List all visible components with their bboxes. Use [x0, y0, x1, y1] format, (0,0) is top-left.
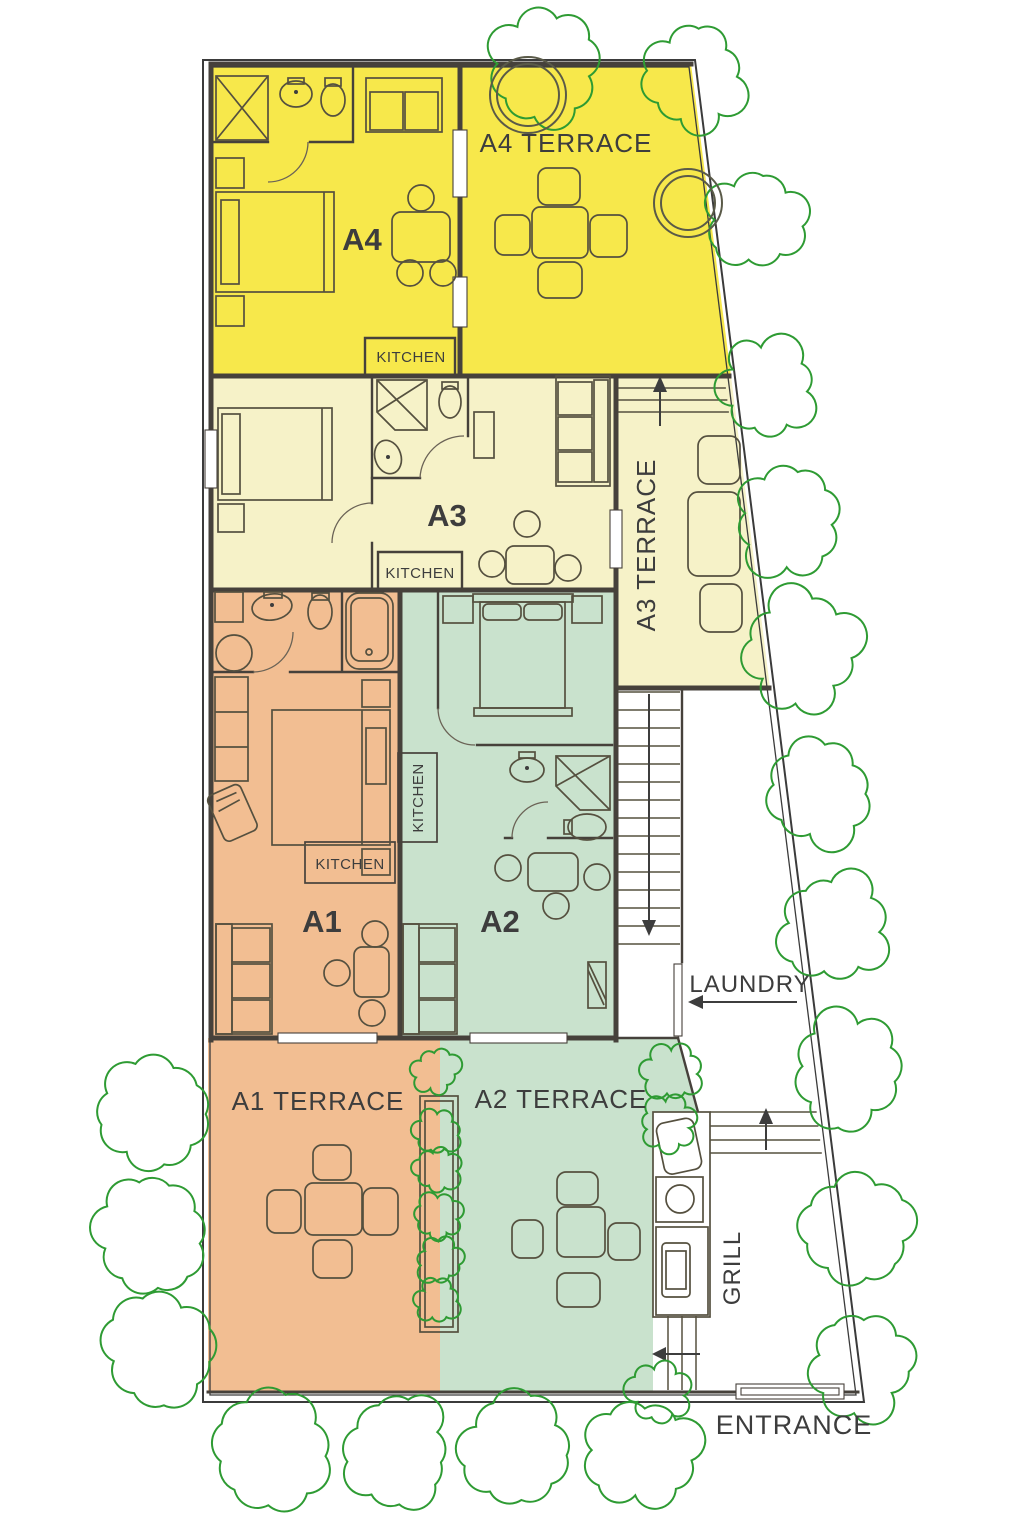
tree: [776, 869, 889, 979]
tree: [97, 1055, 208, 1172]
label-a4-terrace: A4 TERRACE: [480, 128, 653, 158]
tree: [343, 1395, 445, 1510]
floor-plan-drawing: A4 A4 TERRACE KITCHEN A3 KITCHEN A3 TERR…: [0, 0, 1024, 1536]
entrance-opening: [736, 1384, 844, 1399]
label-a1-terrace: A1 TERRACE: [232, 1086, 405, 1116]
label-grill: GRILL: [719, 1231, 746, 1305]
label-kitchen-a3: KITCHEN: [385, 565, 454, 582]
tree: [797, 1172, 917, 1286]
label-a4: A4: [342, 222, 382, 257]
tree: [101, 1292, 217, 1408]
a3-window: [205, 430, 217, 488]
label-laundry: LAUNDRY: [689, 971, 810, 998]
tree: [796, 1007, 902, 1132]
tree: [90, 1178, 205, 1294]
a4-terrace-opening: [453, 277, 467, 327]
label-a1: A1: [302, 904, 342, 939]
zone-a4: [211, 64, 460, 376]
label-kitchen-a2: KITCHEN: [410, 763, 427, 832]
tree: [456, 1388, 569, 1503]
tree: [705, 173, 810, 266]
label-kitchen-a1: KITCHEN: [315, 856, 384, 873]
tree: [212, 1388, 330, 1512]
a1-terrace-window: [278, 1033, 377, 1043]
stairwell: [618, 692, 680, 944]
stairs-down-arrowhead: [642, 920, 656, 936]
laundry-door: [674, 964, 682, 1036]
floor-plan-page: A4 A4 TERRACE KITCHEN A3 KITCHEN A3 TERR…: [0, 0, 1024, 1536]
a4-terrace-opening: [453, 130, 467, 197]
label-entrance: ENTRANCE: [716, 1410, 873, 1440]
label-a2-terrace: A2 TERRACE: [475, 1084, 648, 1114]
a3-terrace-window: [610, 510, 622, 568]
label-a2: A2: [480, 904, 520, 939]
grill-area: [652, 1112, 710, 1390]
a2-terrace-window: [470, 1033, 567, 1043]
label-kitchen-a4: KITCHEN: [376, 349, 445, 366]
label-a3-terrace: A3 TERRACE: [631, 459, 661, 632]
zone-a1: [211, 590, 400, 1038]
label-a3: A3: [427, 498, 467, 533]
tree: [808, 1316, 917, 1424]
